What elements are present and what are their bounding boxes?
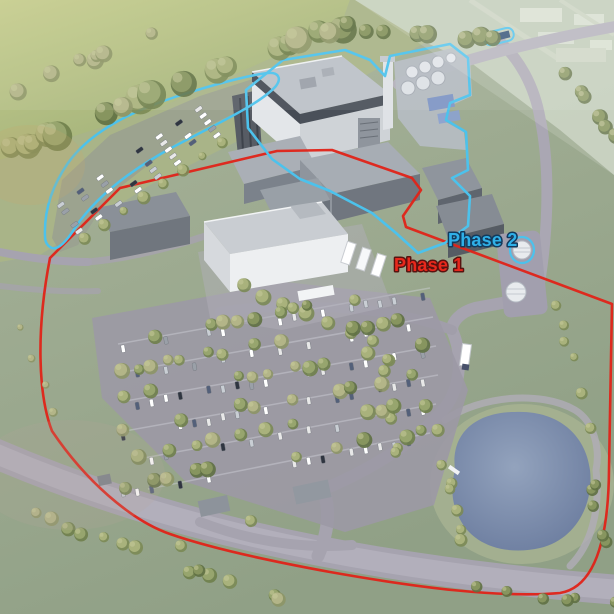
tree [192, 440, 203, 451]
tree [247, 401, 260, 414]
tree [455, 534, 468, 547]
tree [99, 532, 109, 542]
tree [216, 315, 231, 330]
tree [234, 429, 247, 442]
tree [559, 337, 569, 347]
tree [148, 330, 162, 344]
tree [200, 462, 216, 478]
tree [406, 369, 418, 381]
tree [98, 219, 110, 231]
tree [346, 321, 361, 336]
tree [588, 501, 599, 512]
tree [331, 442, 343, 454]
tree [247, 312, 262, 327]
tree [255, 289, 271, 305]
tree [585, 423, 596, 434]
tree [247, 371, 259, 383]
tree [163, 355, 174, 366]
tree [143, 384, 158, 399]
site-plan-svg: Phase 2 Phase 1 [0, 0, 614, 614]
tree [416, 425, 427, 436]
tree [193, 565, 205, 577]
tree [386, 398, 401, 413]
tree [237, 278, 251, 292]
tree [231, 315, 244, 328]
tree [163, 444, 177, 458]
site-aerial-render: Phase 2 Phase 1 [0, 0, 614, 614]
tree [302, 361, 318, 377]
phase1-label: Phase 1 [394, 255, 463, 275]
tree [551, 301, 561, 311]
tree [28, 355, 36, 363]
tree [391, 313, 405, 327]
tree [174, 413, 188, 427]
tree [576, 388, 588, 400]
tree [288, 302, 300, 314]
tree [49, 408, 58, 417]
tree [174, 355, 185, 366]
tree [376, 317, 391, 332]
tree [177, 164, 189, 176]
tree [382, 354, 393, 365]
tree [436, 460, 447, 471]
retention-pond [452, 412, 590, 551]
tree [317, 358, 330, 371]
tree [79, 233, 91, 245]
tree [137, 191, 150, 204]
tree [234, 371, 244, 381]
tree [361, 346, 375, 360]
tree [158, 179, 169, 190]
tree [349, 294, 360, 305]
tree [451, 505, 463, 517]
tree [302, 300, 313, 311]
tree [290, 361, 301, 372]
tree [203, 347, 214, 358]
tree [361, 321, 376, 336]
tree [399, 430, 415, 446]
tree [116, 537, 129, 550]
tree [374, 376, 389, 391]
tree [217, 137, 228, 148]
tree [287, 394, 298, 405]
tree [17, 324, 23, 330]
tree [367, 335, 379, 347]
tree [120, 207, 129, 216]
tree [471, 581, 482, 592]
tree [198, 152, 206, 160]
tree [445, 484, 455, 494]
tree [234, 398, 248, 412]
tree [271, 592, 285, 606]
tree [561, 594, 573, 606]
tree [432, 424, 445, 437]
tree [248, 338, 261, 351]
tree [175, 540, 187, 552]
tree [344, 381, 357, 394]
tree [321, 316, 335, 330]
tree [559, 320, 569, 330]
tree [415, 338, 430, 353]
phase2-label: Phase 2 [448, 230, 517, 250]
tree [356, 432, 372, 448]
tree [245, 515, 257, 527]
tree [419, 399, 433, 413]
tree [118, 390, 131, 403]
tree [288, 419, 299, 430]
tree [378, 365, 390, 377]
tree [134, 364, 145, 375]
tree [590, 480, 601, 491]
tree [205, 432, 221, 448]
tree [223, 574, 237, 588]
tree [42, 381, 49, 388]
tree [275, 306, 287, 318]
tree [456, 525, 466, 535]
tree [538, 593, 550, 605]
tree [258, 422, 273, 437]
tree [274, 334, 289, 349]
tree [597, 530, 609, 542]
tree [129, 540, 143, 554]
tree [263, 369, 273, 379]
tree [114, 363, 130, 379]
tree [291, 452, 302, 463]
tree [570, 353, 578, 361]
tree [143, 360, 158, 375]
tree [502, 586, 513, 597]
tree [360, 404, 376, 420]
tree [391, 447, 402, 458]
tree [216, 349, 228, 361]
